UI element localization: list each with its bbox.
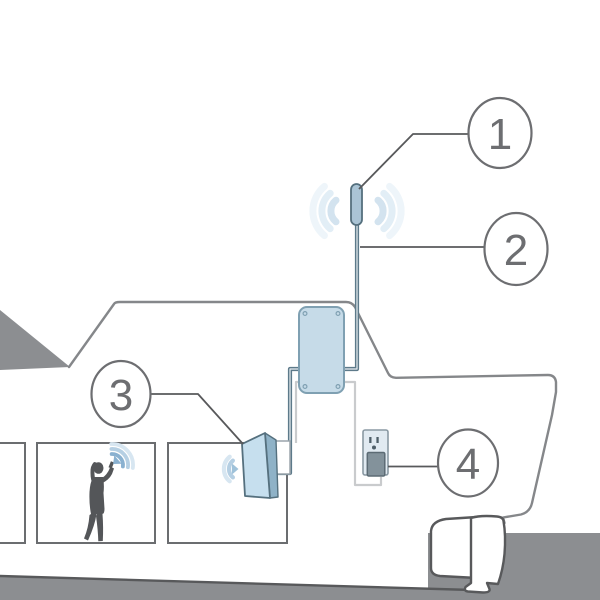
callout-3: 3 [92, 361, 151, 427]
callout-2-label: 2 [504, 226, 528, 275]
callout-2: 2 [485, 213, 548, 285]
diagram-canvas: 1 2 3 4 [0, 0, 600, 600]
boat-signal-booster-diagram: 1 2 3 4 [0, 0, 600, 600]
leader-3 [151, 394, 243, 444]
callout-1: 1 [469, 98, 532, 168]
callout-3-label: 3 [109, 371, 133, 420]
outdoor-signal-waves-left-icon [313, 186, 336, 235]
room-left [0, 443, 25, 543]
callout-1-label: 1 [488, 110, 512, 159]
leader-1 [359, 134, 468, 189]
power-outlet [363, 430, 388, 476]
outside-antenna [351, 184, 362, 225]
outboard-motor [465, 516, 505, 593]
bow-triangle [0, 310, 70, 370]
booster-unit [299, 307, 344, 393]
outdoor-signal-waves-right-icon [378, 186, 401, 235]
callout-4: 4 [438, 430, 498, 497]
power-plug [367, 453, 385, 477]
callout-4-label: 4 [456, 440, 480, 489]
person-torso [89, 477, 104, 514]
panel-antenna-front [242, 433, 270, 498]
